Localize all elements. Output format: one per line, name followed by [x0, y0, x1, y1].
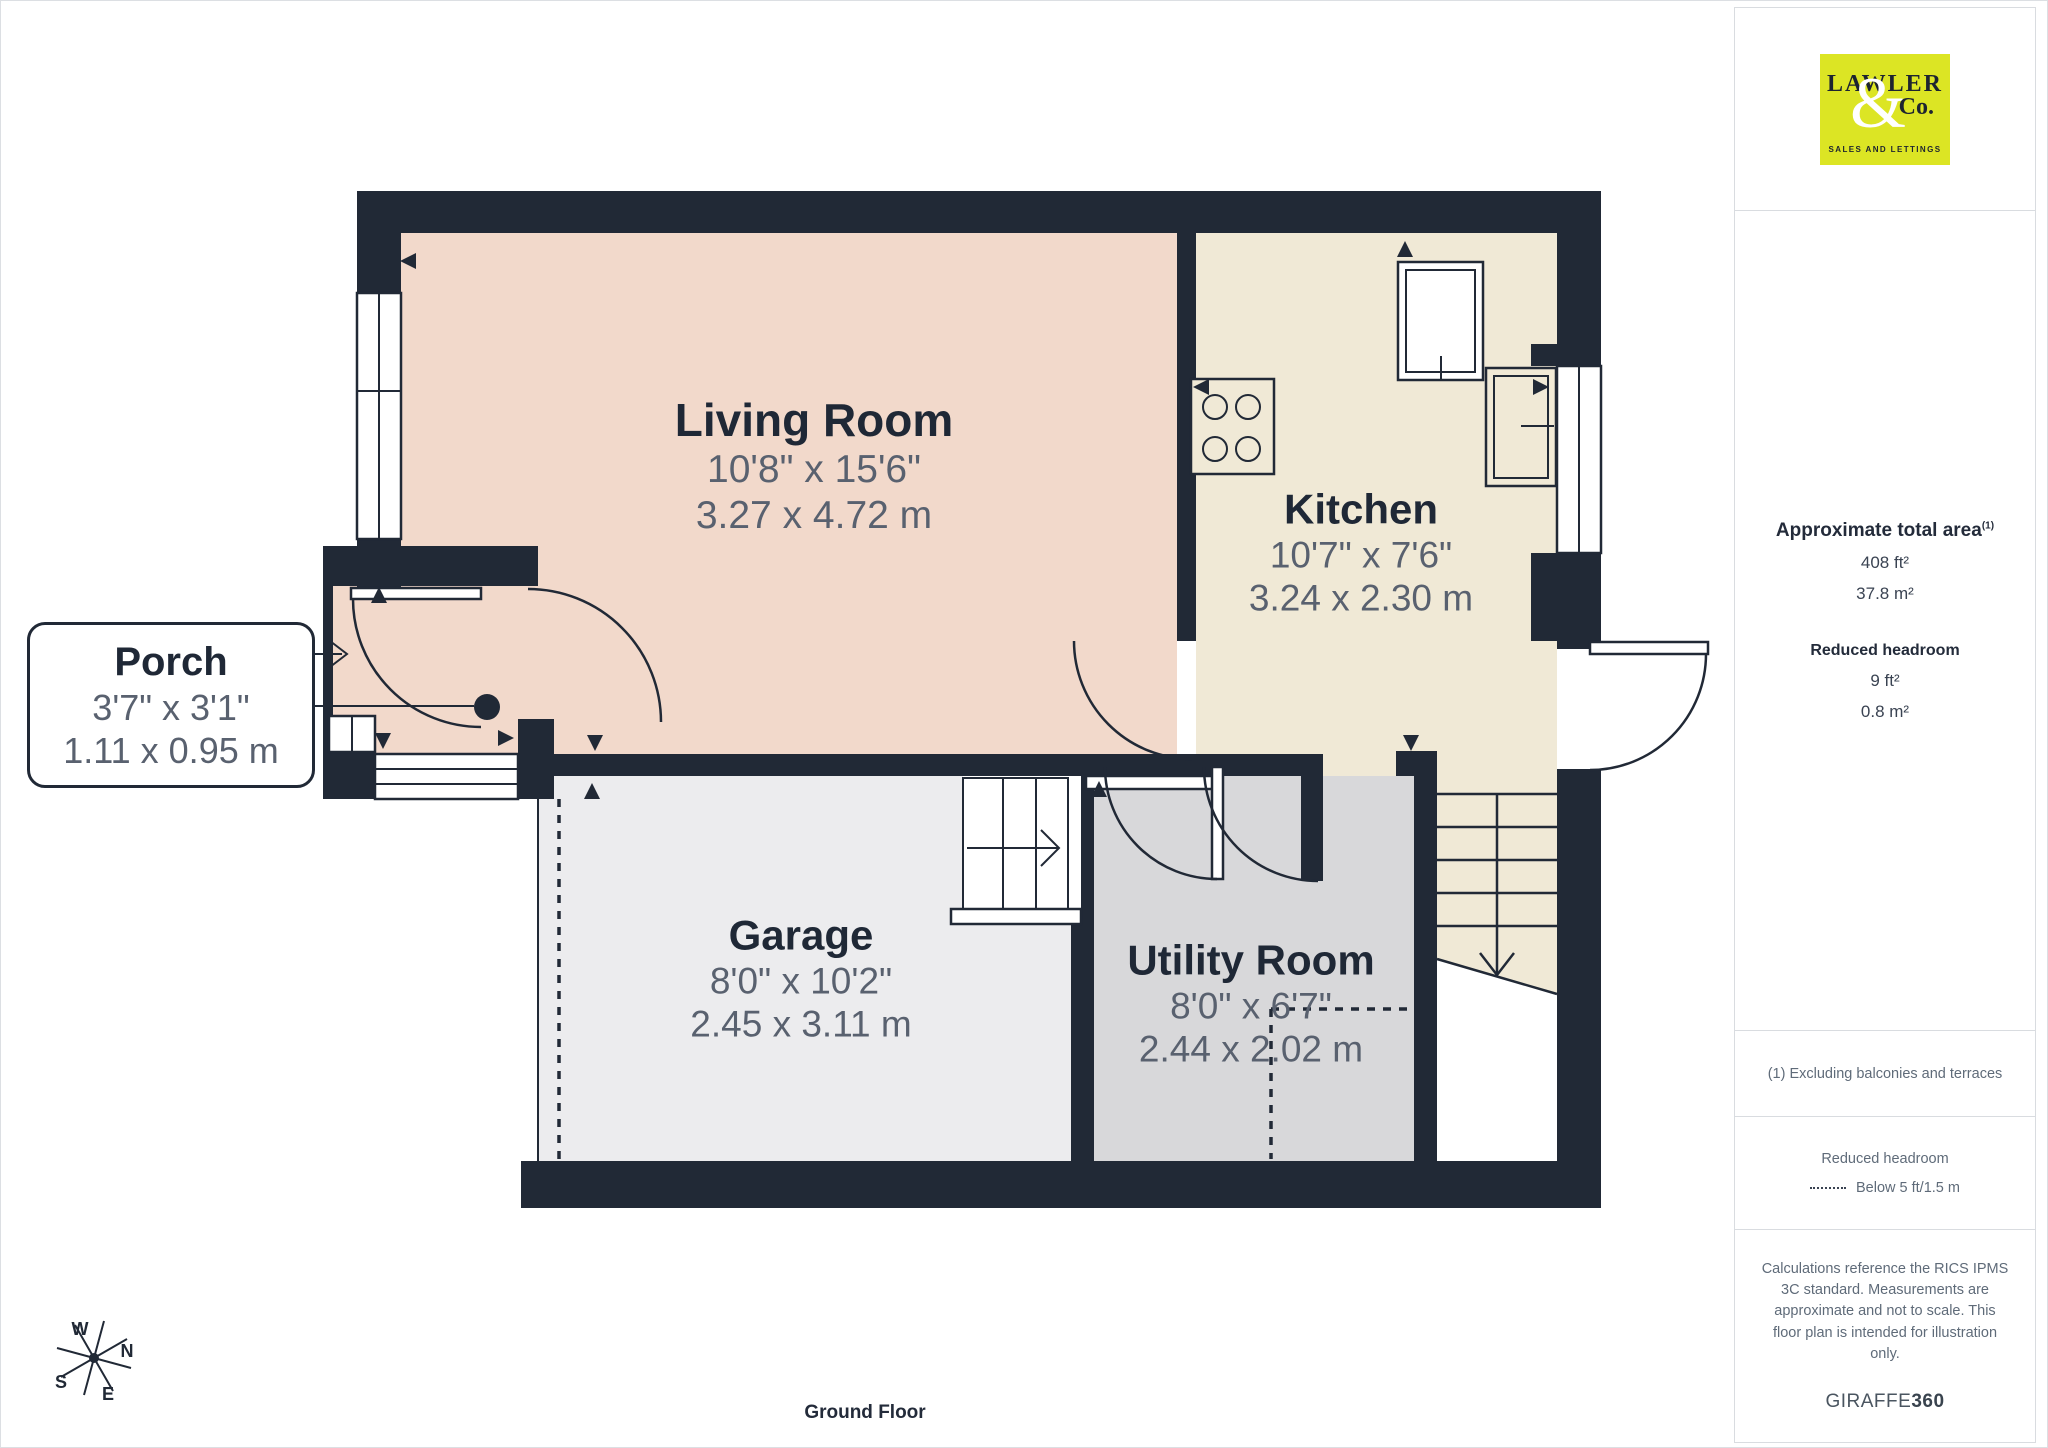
room-size-imperial: 10'7" x 7'6" — [1249, 534, 1473, 577]
disclaimer-text: Calculations reference the RICS IPMS 3C … — [1761, 1259, 2009, 1364]
legend-heading: Reduced headroom — [1821, 1151, 1948, 1167]
room-name: Utility Room — [1127, 937, 1374, 986]
headroom-heading: Reduced headroom — [1810, 642, 1959, 660]
room-size-imperial: 8'0" x 10'2" — [690, 960, 911, 1003]
logo-tagline: SALES AND LETTINGS — [1820, 145, 1950, 154]
area-heading-footnote-ref: (1) — [1982, 520, 1994, 531]
agency-logo: & LAWLER Co. SALES AND LETTINGS — [1820, 54, 1950, 165]
garage-label: Garage 8'0" x 10'2" 2.45 x 3.11 m — [690, 912, 911, 1047]
kitchen-label: Kitchen 10'7" x 7'6" 3.24 x 2.30 m — [1249, 486, 1473, 621]
info-sidebar: & LAWLER Co. SALES AND LETTINGS Approxim… — [1734, 7, 2036, 1443]
rear-door-leaf — [1590, 642, 1708, 654]
porch-label-callout: Porch 3'7" x 3'1" 1.11 x 0.95 m — [27, 622, 315, 788]
headroom-imperial: 9 ft² — [1870, 671, 1899, 691]
footnote-text: (1) Excluding balconies and terraces — [1768, 1066, 2003, 1082]
logo-co: Co. — [1899, 94, 1934, 121]
area-heading: Approximate total area(1) — [1776, 520, 1994, 542]
stove-icon — [1191, 379, 1274, 474]
disclaimer-section: Calculations reference the RICS IPMS 3C … — [1735, 1230, 2035, 1442]
living-room-label: Living Room 10'8" x 15'6" 3.27 x 4.72 m — [675, 394, 954, 538]
room-name: Living Room — [675, 394, 954, 447]
kitchen-top-unit — [1398, 262, 1483, 380]
compass-south: S — [55, 1372, 67, 1392]
porch-front-window — [375, 754, 518, 799]
area-summary-section: Approximate total area(1) 408 ft² 37.8 m… — [1735, 211, 2035, 1031]
logo-section: & LAWLER Co. SALES AND LETTINGS — [1735, 8, 2035, 211]
step-sill — [951, 909, 1081, 924]
porch-side-window — [329, 716, 375, 752]
giraffe360-credit: GIRAFFE360 — [1825, 1391, 1944, 1413]
living-room-window — [357, 293, 401, 539]
total-area-metric: 37.8 m² — [1856, 584, 1914, 604]
room-size-metric: 3.27 x 4.72 m — [675, 493, 954, 538]
room-size-metric: 3.24 x 2.30 m — [1249, 577, 1473, 620]
room-size-imperial: 3'7" x 3'1" — [92, 686, 249, 729]
garage-stairs-nook — [963, 776, 1081, 924]
floor-title: Ground Floor — [1, 1402, 1729, 1424]
compass-west: W — [72, 1319, 89, 1339]
room-name: Garage — [690, 912, 911, 961]
legend-value: Below 5 ft/1.5 m — [1856, 1180, 1960, 1196]
credit-brand: GIRAFFE — [1825, 1391, 1911, 1412]
compass-north: N — [121, 1341, 134, 1361]
kitchen-side-window — [1557, 366, 1601, 553]
compass-icon: W N S E — [55, 1319, 134, 1404]
credit-brand-bold: 360 — [1911, 1391, 1944, 1412]
area-heading-text: Approximate total area — [1776, 520, 1982, 541]
compass-east: E — [102, 1384, 114, 1404]
room-size-metric: 2.45 x 3.11 m — [690, 1003, 911, 1046]
room-size-metric: 2.44 x 2.02 m — [1127, 1028, 1374, 1071]
room-size-imperial: 8'0" x 6'7" — [1127, 985, 1374, 1028]
headroom-metric: 0.8 m² — [1861, 702, 1909, 722]
front-door-leaf — [351, 588, 481, 599]
room-name: Porch — [114, 638, 227, 686]
camera-point-dot — [474, 694, 500, 720]
legend-section: Reduced headroom Below 5 ft/1.5 m — [1735, 1117, 2035, 1230]
legend-row: Below 5 ft/1.5 m — [1810, 1180, 1960, 1196]
dotted-line-icon — [1810, 1187, 1846, 1189]
rear-door-arc — [1590, 654, 1706, 770]
utility-room-label: Utility Room 8'0" x 6'7" 2.44 x 2.02 m — [1127, 937, 1374, 1072]
room-name: Kitchen — [1249, 486, 1473, 535]
room-size-imperial: 10'8" x 15'6" — [675, 447, 954, 492]
floorplan-page: W N S E Living Room 10'8" x 15'6" 3.27 x… — [0, 0, 2048, 1448]
logo-ampersand: & — [1850, 62, 1906, 145]
room-size-metric: 1.11 x 0.95 m — [63, 729, 278, 772]
total-area-imperial: 408 ft² — [1861, 553, 1909, 573]
footnote-section: (1) Excluding balconies and terraces — [1735, 1031, 2035, 1117]
